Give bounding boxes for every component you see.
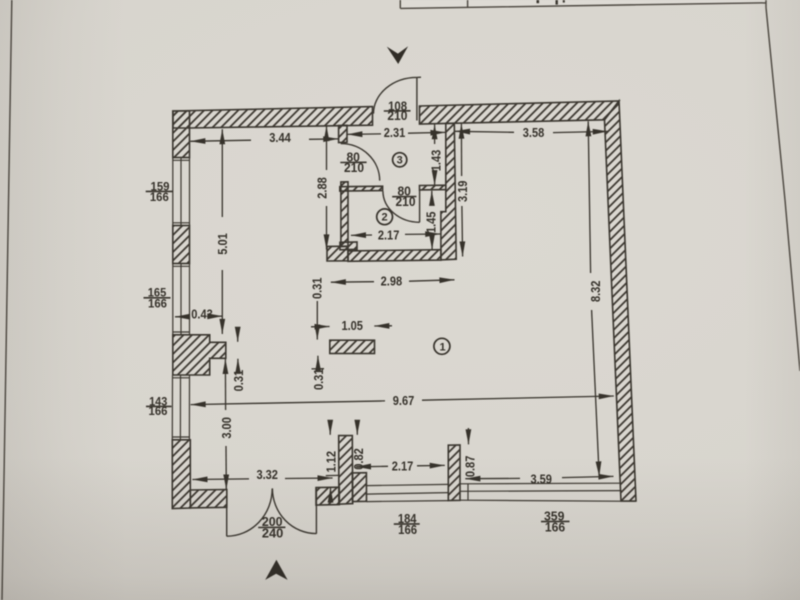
svg-text:2.98: 2.98 [381, 274, 403, 289]
svg-text:0.31: 0.31 [311, 369, 326, 391]
svg-text:0.31: 0.31 [310, 278, 325, 300]
svg-text:2.88: 2.88 [315, 177, 330, 199]
svg-text:0.87: 0.87 [463, 456, 478, 478]
svg-text:2: 2 [382, 212, 388, 224]
svg-text:166: 166 [148, 298, 167, 310]
svg-text:0.43: 0.43 [191, 307, 213, 322]
svg-text:8.32: 8.32 [588, 281, 603, 303]
svg-text:2.31: 2.31 [384, 125, 406, 140]
svg-text:3.32: 3.32 [256, 467, 278, 482]
svg-text:3.59: 3.59 [530, 471, 552, 486]
svg-text:1.05: 1.05 [341, 318, 363, 333]
svg-text:2.17: 2.17 [378, 228, 400, 243]
svg-text:166: 166 [149, 406, 168, 418]
svg-text:1.12: 1.12 [323, 451, 338, 473]
svg-text:5.01: 5.01 [215, 233, 230, 255]
svg-text:3.00: 3.00 [219, 417, 234, 439]
svg-text:3.44: 3.44 [269, 130, 291, 145]
svg-text:3.58: 3.58 [523, 125, 545, 140]
svg-text:0.31: 0.31 [231, 370, 246, 392]
svg-text:1: 1 [440, 342, 446, 354]
svg-text:3: 3 [397, 155, 403, 167]
svg-text:0.82: 0.82 [351, 448, 366, 470]
svg-text:9.67: 9.67 [393, 393, 415, 408]
svg-text:3.19: 3.19 [455, 181, 470, 203]
svg-text:1.45: 1.45 [423, 212, 438, 234]
svg-text:2.17: 2.17 [392, 459, 414, 474]
svg-text:166: 166 [150, 192, 169, 204]
svg-text:1.43: 1.43 [429, 150, 444, 172]
